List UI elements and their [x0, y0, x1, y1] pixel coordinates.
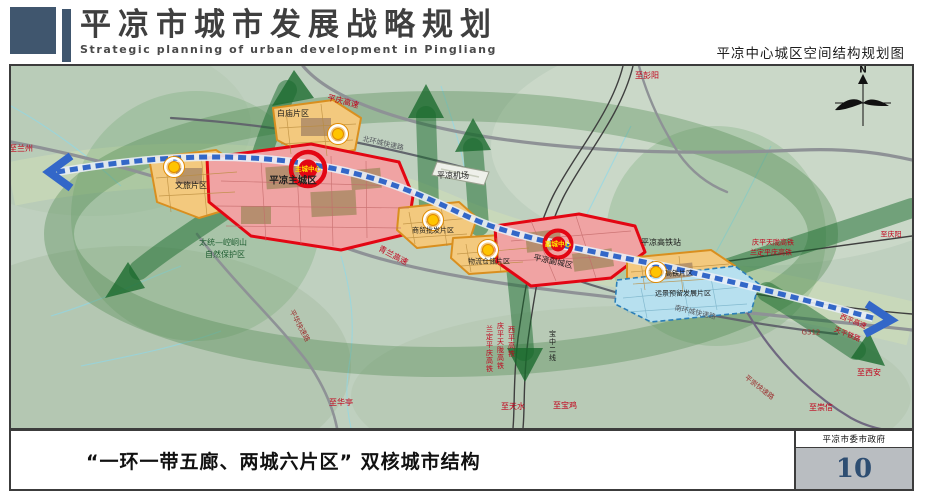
page-number-cell: 10: [796, 448, 912, 489]
page-subtitle-en: Strategic planning of urban development …: [80, 43, 498, 56]
map-label-to-baoji: 至宝鸡: [553, 402, 577, 410]
map-canvas: [11, 66, 912, 428]
footer-caption: “一环一带五廊、两城六片区” 双核城市结构: [86, 447, 481, 474]
caption-area: “一环一带五廊、两城六片区” 双核城市结构: [11, 431, 794, 489]
agency-label: 平凉市委市政府: [796, 431, 912, 448]
map-label-to-qingyang: 至庆阳: [881, 232, 902, 239]
map-label-to-pengyang: 至彭阳: [635, 72, 659, 80]
map-label-xiping-hsr: 西平高铁: [508, 326, 515, 358]
map-label-hsr-station: 平凉高铁站: [641, 239, 681, 247]
map-label-to-huating: 至华亭: [329, 399, 353, 407]
map-label-nature-reserve-1: 太统—崆峒山: [199, 239, 247, 247]
map-label-baozhong-line2: 宝中二线: [549, 330, 556, 362]
page-number: 10: [836, 454, 872, 484]
header-titles: 平凉市城市发展战略规划 Strategic planning of urban …: [80, 8, 498, 56]
map-label-landing-pingqing-hsr-s: 兰定平庆高铁: [486, 325, 493, 373]
map-label-hsr-district: 高铁片区: [665, 271, 693, 278]
map-label-nature-reserve-2: 自然保护区: [205, 251, 245, 259]
header-logo-square: [10, 7, 56, 54]
map-label-main-city: 平凉主城区: [269, 176, 317, 186]
map-label-airport: 平凉机场: [437, 172, 469, 180]
map-label-landing-pingqing-hsr: 兰定平庆高铁: [750, 250, 792, 257]
map-label-tourism-district: 文旅片区: [175, 182, 207, 190]
map-label-to-chongxin: 至崇信: [809, 404, 833, 412]
map-label-main-core: 主城中心: [295, 166, 321, 173]
map-label-qingping-tianlong-hsr-s: 庆平天陇高铁: [497, 322, 504, 370]
sheet-title: 平凉中心城区空间结构规划图: [555, 42, 905, 62]
page-title: 平凉市城市发展战略规划: [80, 8, 498, 42]
compass-north-label: N: [859, 67, 867, 76]
map-label-baimiao-district: 白庙片区: [277, 110, 309, 118]
page-number-box: 平凉市委市政府 10: [794, 431, 912, 489]
map-label-sub-core: 副城中心: [545, 241, 571, 248]
map-label-qingping-tianlong-hsr: 庆平天陇高铁: [752, 240, 794, 247]
map-label-logistics-district: 物流仓储片区: [468, 259, 510, 266]
map-label-g312: G312: [802, 330, 821, 337]
plan-sheet: { "header": { "title_cn": "平凉市城市发展战略规划",…: [0, 0, 925, 500]
map-label-to-tianshui: 至天水: [501, 403, 525, 411]
map-label-reserved-district: 远景预留发展片区: [655, 291, 711, 298]
map-label-to-xian: 至西安: [857, 369, 881, 377]
header-logo-bar: [62, 9, 71, 62]
map-label-wholesale-district: 商贸批发片区: [412, 228, 454, 235]
map-label-to-lanzhou: 至兰州: [9, 145, 33, 153]
map: 至兰州 平庆高速 北环城快速路 白庙片区 平凉机场 至彭阳 庆平天陇高铁 兰定平…: [9, 64, 914, 430]
footer: “一环一带五廊、两城六片区” 双核城市结构 平凉市委市政府 10: [9, 429, 914, 491]
